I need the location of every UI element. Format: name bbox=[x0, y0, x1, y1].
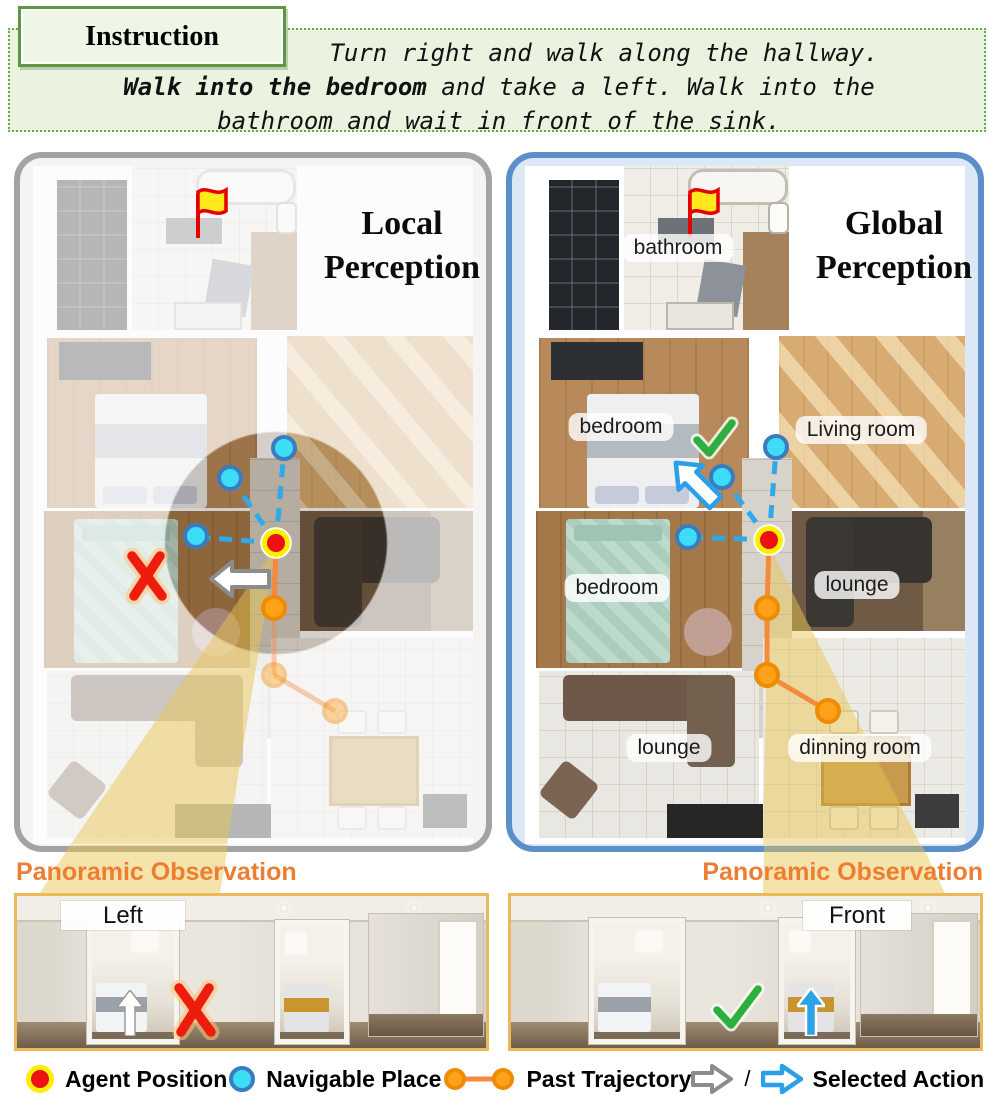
global-panoramic-observation: Front bbox=[508, 893, 983, 1051]
instruction-line2-bold: Walk into the bedroom bbox=[123, 73, 426, 101]
ceiling-light bbox=[409, 903, 419, 913]
view-direction-label: Left bbox=[61, 901, 185, 930]
legend-agent-label: Agent Position bbox=[65, 1066, 227, 1093]
local-title-line2: Perception bbox=[324, 249, 480, 286]
local-title-line1: Local bbox=[361, 205, 442, 242]
legend-navigable-label: Navigable Place bbox=[266, 1066, 441, 1093]
global-pano-title: Panoramic Observation bbox=[702, 858, 983, 887]
bed-through-door bbox=[284, 984, 329, 1032]
view-cone bbox=[71, 546, 276, 844]
agent-position-icon bbox=[24, 1063, 56, 1095]
room-floor bbox=[280, 1032, 344, 1039]
view-cone bbox=[763, 546, 920, 844]
past-trajectory-icon bbox=[441, 1065, 517, 1093]
corridor bbox=[369, 914, 483, 1036]
wrong-action-cross-icon bbox=[167, 980, 223, 1040]
global-title-line1: Global bbox=[845, 205, 943, 242]
legend-action-separator: / bbox=[744, 1066, 750, 1092]
legend-navigable-place: Navigable Place bbox=[227, 1064, 441, 1094]
global-panel-title: Global Perception bbox=[814, 202, 974, 289]
past-trajectory bbox=[263, 543, 346, 722]
room-floor bbox=[594, 1032, 680, 1039]
instruction-line2-rest: and take a left. Walk into the bbox=[427, 73, 875, 101]
local-panoramic-observation: Left bbox=[14, 893, 489, 1051]
local-perception-panel: Local Perception bbox=[14, 152, 492, 852]
legend-action-label: Selected Action bbox=[812, 1066, 984, 1093]
corridor-floor bbox=[369, 1014, 483, 1036]
blanket bbox=[284, 998, 329, 1012]
window bbox=[790, 931, 810, 951]
legend-selected-action: / Selected Action bbox=[691, 1063, 984, 1095]
view-direction-label: Front bbox=[803, 901, 911, 930]
wrong-action-cross-icon bbox=[132, 556, 162, 596]
blue-action-arrow-icon bbox=[761, 1063, 803, 1095]
correct-action-check-icon bbox=[707, 982, 765, 1032]
local-panel-title: Local Perception bbox=[322, 202, 482, 289]
global-perception-panel: bathroom bedroom Living room bedroom lou… bbox=[506, 152, 984, 852]
agent-position-marker bbox=[262, 529, 291, 558]
white-up-arrow-icon bbox=[117, 990, 143, 1036]
gray-action-arrow-icon bbox=[691, 1063, 733, 1095]
legend-trajectory-label: Past Trajectory bbox=[526, 1066, 691, 1093]
ceiling-light bbox=[763, 903, 773, 913]
blue-up-arrow-icon bbox=[797, 988, 825, 1036]
instruction-line1: Turn right and walk along the hallway. bbox=[20, 36, 978, 70]
goal-flag-icon bbox=[198, 190, 226, 238]
correct-action-check-icon bbox=[697, 423, 732, 453]
open-door bbox=[932, 920, 972, 1028]
corridor bbox=[861, 914, 977, 1036]
blanket bbox=[598, 997, 651, 1012]
ceiling-light bbox=[279, 903, 289, 913]
global-title-line2: Perception bbox=[816, 249, 972, 286]
bedroom-doorway bbox=[589, 918, 685, 1044]
bed-through-door bbox=[598, 983, 651, 1032]
corridor-floor bbox=[861, 1014, 977, 1036]
ceiling-light bbox=[923, 903, 933, 913]
instruction-line3: bathroom and wait in front of the sink. bbox=[217, 107, 781, 135]
agent-position-marker bbox=[755, 526, 784, 555]
window bbox=[132, 931, 158, 951]
window bbox=[636, 931, 662, 951]
legend-past-trajectory: Past Trajectory bbox=[441, 1065, 691, 1093]
goal-flag-icon bbox=[690, 190, 718, 238]
bedroom-doorway bbox=[275, 920, 349, 1044]
legend: Agent Position Navigable Place Past Traj… bbox=[0, 1057, 996, 1101]
navigable-place-icon bbox=[227, 1064, 257, 1094]
open-door bbox=[438, 920, 478, 1028]
window bbox=[286, 933, 306, 953]
legend-agent-position: Agent Position bbox=[24, 1063, 227, 1095]
local-pano-title: Panoramic Observation bbox=[16, 858, 297, 887]
instruction-box: Instruction Turn right and walk along th… bbox=[8, 28, 986, 132]
instruction-text: Turn right and walk along the hallway. W… bbox=[20, 36, 978, 138]
